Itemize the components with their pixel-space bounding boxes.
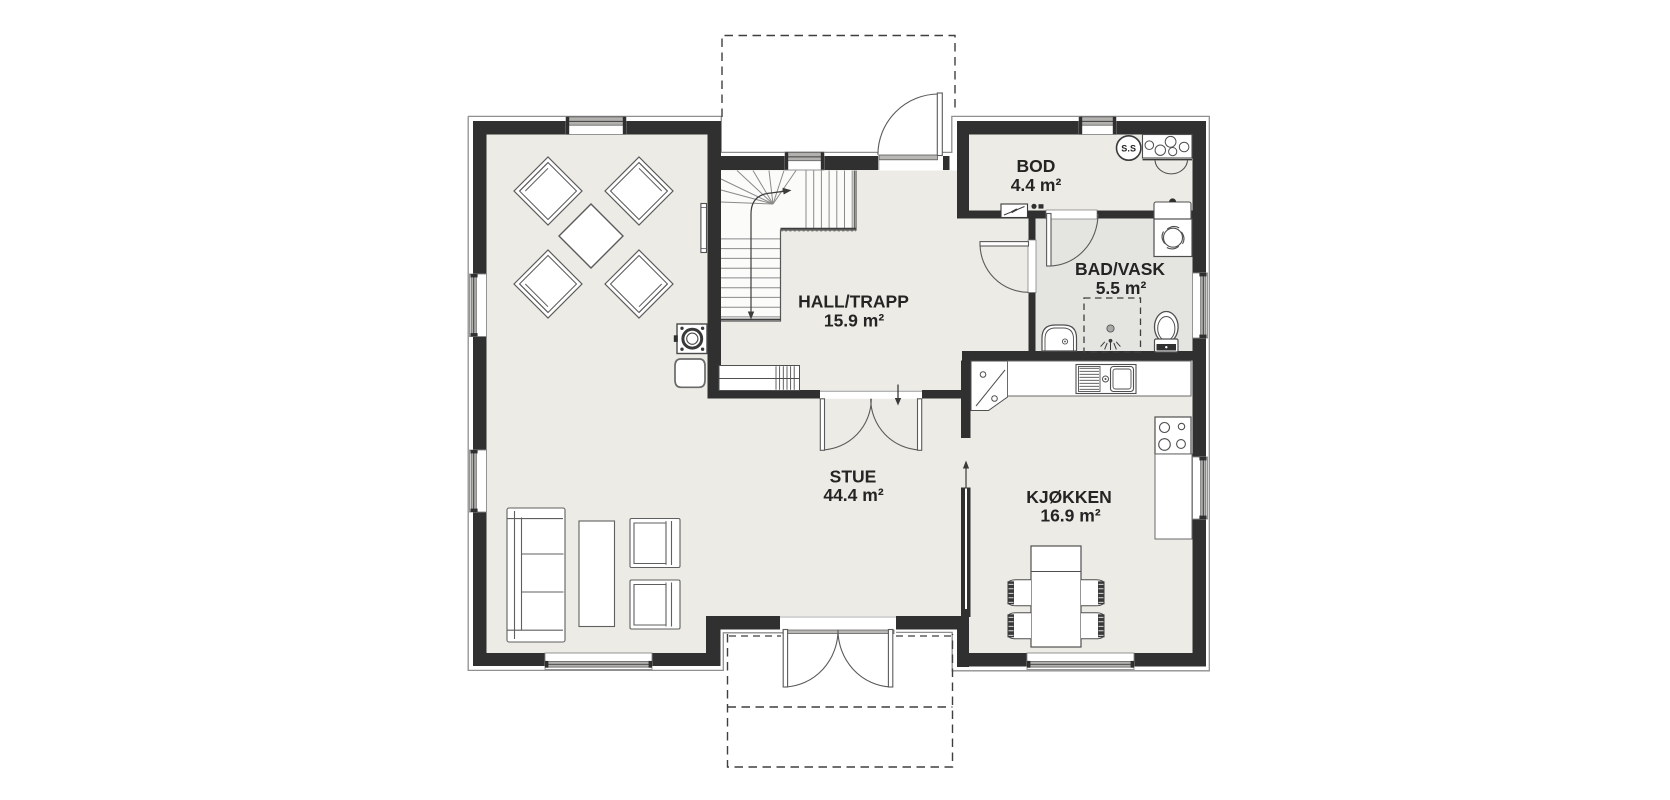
svg-text:4.4 m²: 4.4 m² [1011,175,1062,195]
svg-text:BAD/VASK: BAD/VASK [1075,259,1165,279]
svg-text:16.9 m²: 16.9 m² [1040,506,1100,526]
svg-text:S.S: S.S [1121,144,1136,154]
svg-text:44.4 m²: 44.4 m² [823,485,883,505]
svg-text:STUE: STUE [830,467,877,487]
svg-text:KJØKKEN: KJØKKEN [1026,487,1112,507]
svg-text:15.9 m²: 15.9 m² [824,311,884,331]
svg-text:BOD: BOD [1017,156,1056,176]
svg-text:5.5 m²: 5.5 m² [1096,278,1147,298]
svg-text:HALL/TRAPP: HALL/TRAPP [798,292,909,312]
